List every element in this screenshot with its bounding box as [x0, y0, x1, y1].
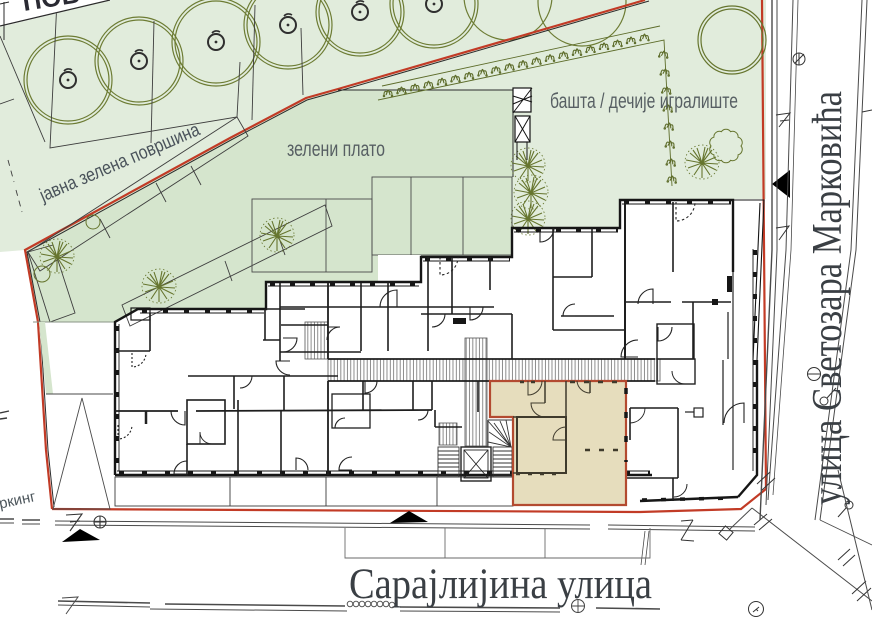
- svg-text:улица Светозара Марковића: улица Светозара Марковића: [805, 91, 851, 505]
- svg-text:башта / дечије игралиште: башта / дечије игралиште: [550, 90, 738, 113]
- svg-text:зелени плато: зелени плато: [287, 138, 385, 161]
- svg-text:Сарајлијина улица: Сарајлијина улица: [349, 561, 652, 608]
